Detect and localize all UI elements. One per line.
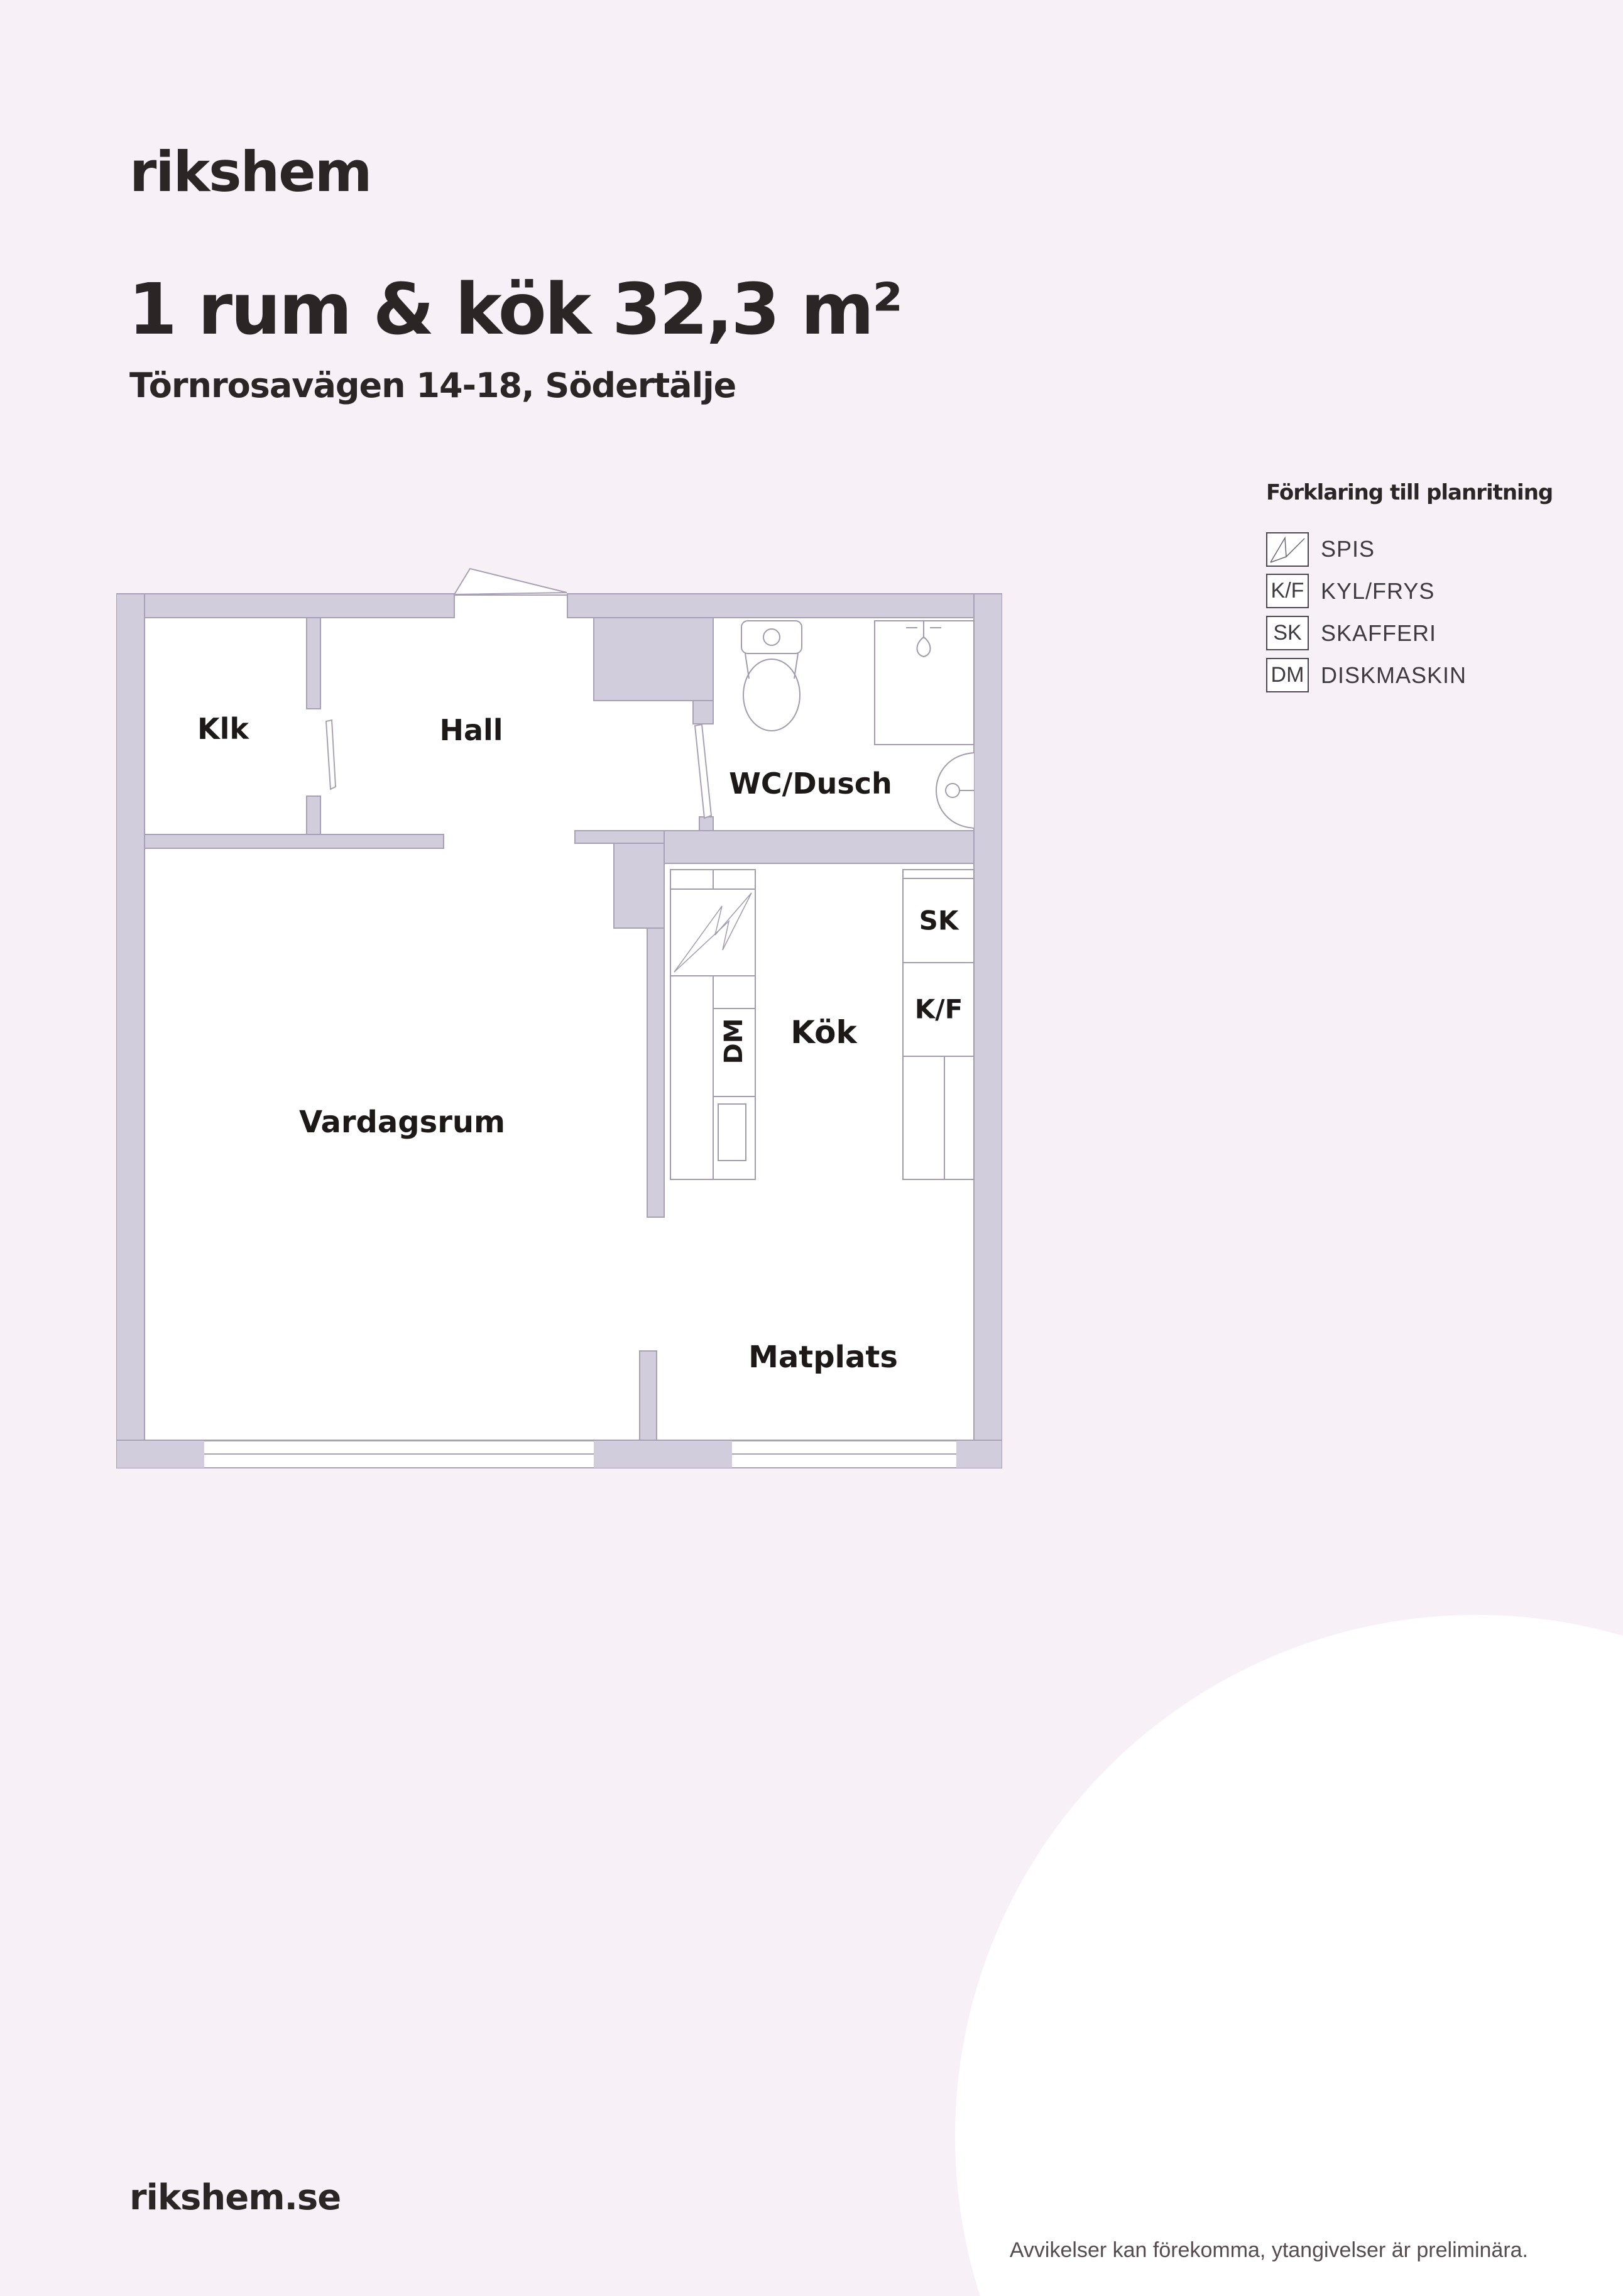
page: rikshem 1 rum & kök 32,3 m² Törnrosaväge… (0, 0, 1623, 2296)
wall-stub (699, 817, 713, 831)
room-label-matplats: Matplats (748, 1340, 898, 1375)
page-title: 1 rum & kök 32,3 m² (128, 269, 901, 351)
wall-block (594, 618, 713, 701)
legend-box-sk-text: SK (1267, 617, 1308, 649)
wall (116, 594, 145, 1468)
windows (204, 1440, 956, 1468)
legend-box-kf: K/F (1266, 574, 1309, 608)
disclaimer-text: Avvikelser kan förekomma, ytangivelser ä… (1010, 2238, 1528, 2263)
floorplan-drawing (116, 562, 1002, 1468)
wall (307, 618, 320, 709)
toilet-icon (741, 621, 802, 731)
wall (974, 594, 1002, 1468)
page-subtitle: Törnrosavägen 14-18, Södertälje (129, 366, 736, 405)
appliance-label-dm: DM (719, 1018, 748, 1064)
legend-box-kf-text: K/F (1267, 575, 1308, 607)
appliance-label-sk: SK (919, 905, 959, 936)
rikshem-logo: rikshem (129, 139, 371, 204)
wall (575, 831, 664, 843)
wall (663, 831, 974, 863)
legend-label-dm: DISKMASKIN (1321, 662, 1467, 689)
wall (647, 928, 664, 1217)
wall (145, 834, 444, 848)
room-label-hall: Hall (439, 713, 503, 747)
floorplan-base (116, 594, 1002, 1468)
room-label-kok: Kök (790, 1014, 856, 1051)
wall-stub (640, 1351, 657, 1440)
legend-box-dm-text: DM (1267, 659, 1308, 691)
legend-label-spis: SPIS (1321, 536, 1375, 562)
wall (116, 594, 454, 618)
stove-zigzag-icon (1267, 533, 1308, 566)
website-link: rikshem.se (129, 2177, 341, 2218)
room-label-klk: Klk (197, 712, 249, 746)
room-label-vardagsrum: Vardagsrum (299, 1105, 505, 1140)
entrance-door (454, 569, 567, 595)
legend-box-spis (1266, 532, 1309, 567)
legend-label-sk: SKAFFERI (1321, 620, 1436, 647)
background-circle (955, 1615, 1623, 2296)
wall-block (614, 843, 664, 928)
legend-title: Förklaring till planritning (1266, 480, 1553, 505)
legend-box-dm: DM (1266, 658, 1309, 692)
legend-label-kf: KYL/FRYS (1321, 578, 1434, 604)
appliance-label-kf: K/F (915, 994, 963, 1025)
wall (693, 701, 713, 724)
door-leaf (454, 569, 567, 594)
wall (567, 594, 1002, 618)
room-label-wc-dusch: WC/Dusch (729, 767, 892, 801)
legend-box-sk: SK (1266, 616, 1309, 650)
wall-stub (307, 796, 320, 834)
kitchen-sink-icon (718, 1104, 746, 1161)
